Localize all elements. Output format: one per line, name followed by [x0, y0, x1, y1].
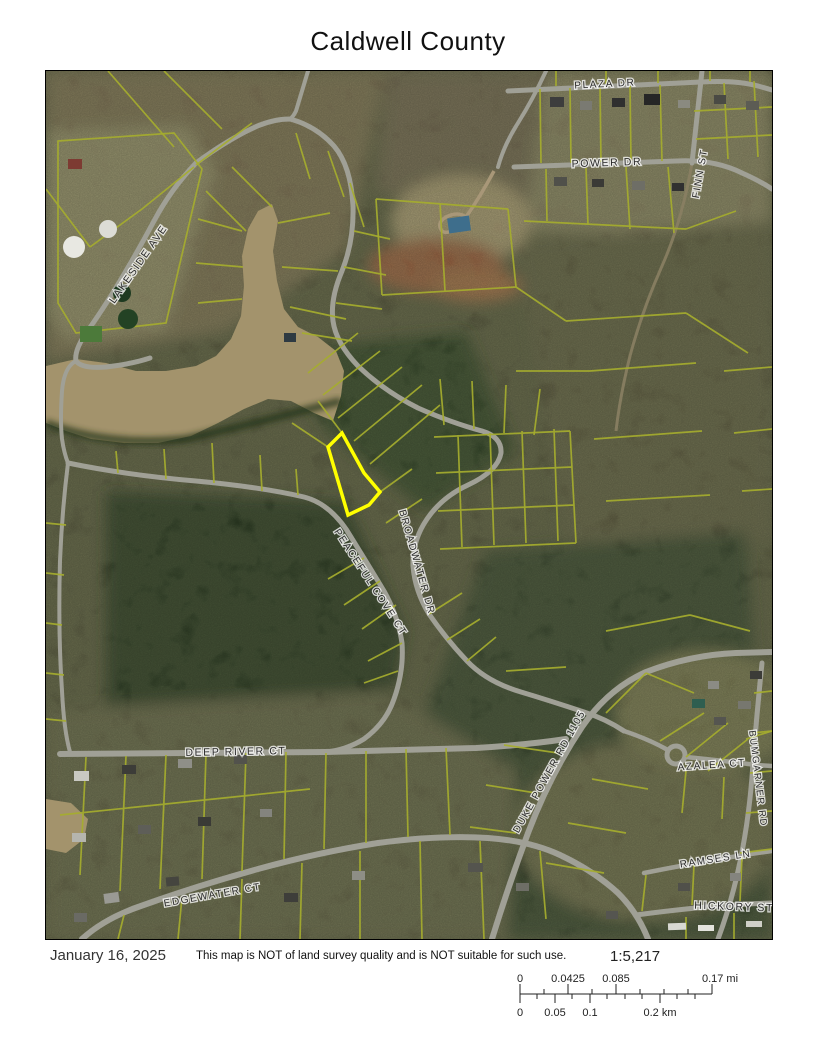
water-tank	[99, 220, 117, 238]
street-label-power-dr: POWER DR	[571, 156, 642, 170]
scale-km-1: 0.05	[544, 1007, 565, 1019]
map-layers: PLAZA DRPOWER DRFINN STLAKESIDE AVEBROAD…	[46, 71, 772, 939]
scale-mi-0: 0	[517, 973, 523, 985]
scale-mi-3: 0.17 mi	[702, 973, 738, 985]
disclaimer-text: This map is NOT of land survey quality a…	[196, 950, 566, 962]
scale-km-0: 0	[517, 1007, 523, 1019]
map-canvas: PLAZA DRPOWER DRFINN STLAKESIDE AVEBROAD…	[45, 70, 773, 940]
dark-tank	[118, 309, 138, 329]
scale-mi-2: 0.085	[602, 973, 630, 985]
green-field	[80, 326, 102, 342]
scale-mi-1: 0.0425	[551, 973, 585, 985]
map-date: January 16, 2025	[50, 947, 166, 964]
scale-ratio: 1:5,217	[610, 948, 660, 965]
street-label-deep-river-ct: DEEP RIVER CT	[185, 745, 286, 759]
page-title: Caldwell County	[0, 26, 816, 57]
scale-km-2: 0.1	[582, 1007, 597, 1019]
water-tank	[63, 236, 85, 258]
scale-bar: 0 0.0425 0.085 0.17 mi 0 0.05 0.1 0.2 km	[505, 970, 815, 1025]
scale-km-3: 0.2 km	[643, 1007, 676, 1019]
blue-roof-house	[447, 216, 471, 234]
aerial-map-image: PLAZA DRPOWER DRFINN STLAKESIDE AVEBROAD…	[46, 71, 772, 939]
